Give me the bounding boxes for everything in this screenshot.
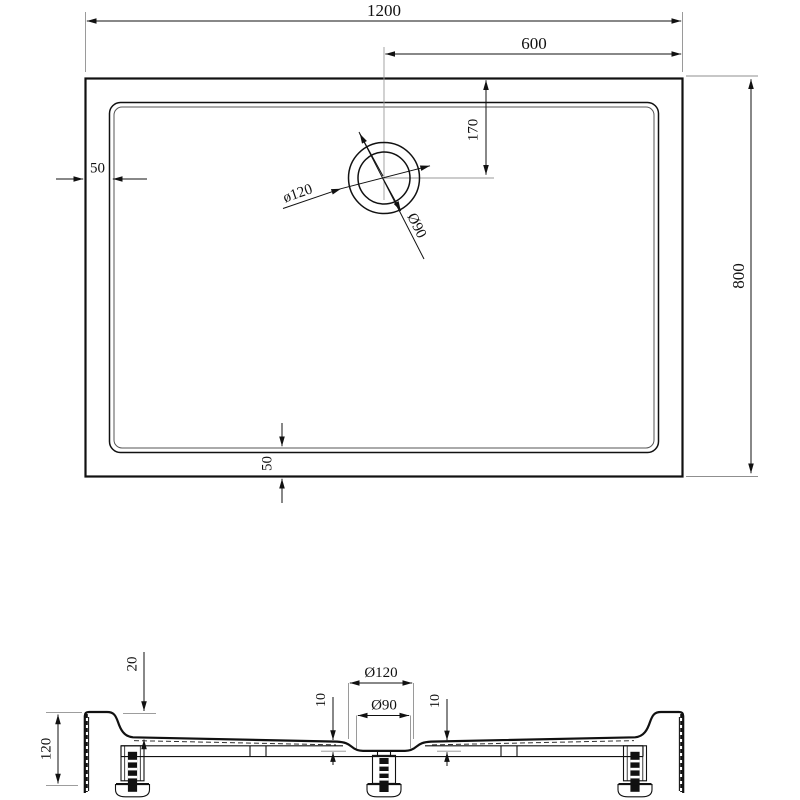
dim-label-section-drain-outer: Ø120 — [364, 665, 397, 681]
section-view: 120 20 Ø120 Ø90 10 — [39, 652, 684, 797]
dim-label-length: 1200 — [367, 1, 401, 20]
technical-drawing-canvas: 1200 600 800 170 50 50 — [0, 0, 800, 800]
thread-mark — [379, 771, 388, 774]
thread-mark — [630, 760, 639, 763]
foot-threaded-rod — [128, 752, 137, 792]
dim-label-depth-right: 10 — [428, 694, 443, 708]
thread-mark — [128, 776, 137, 779]
dim-recess-depth-left-10: 10 — [314, 693, 346, 765]
dim-margin-left-50: 50 — [56, 161, 147, 180]
dim-width-800: 800 — [686, 76, 758, 477]
foot-threaded-rod — [379, 758, 388, 792]
dim-margin-bottom-50: 50 — [260, 423, 283, 503]
foot-threaded-rod — [630, 752, 639, 792]
thread-mark — [630, 768, 639, 771]
foot-right — [618, 746, 652, 797]
dim-label-depth-left: 10 — [314, 693, 329, 707]
dim-recess-depth-right-10: 10 — [428, 694, 461, 766]
dim-rim-height-20: 20 — [123, 652, 156, 760]
top-view: 1200 600 800 170 50 50 — [56, 1, 758, 503]
dim-label-margin-left: 50 — [90, 161, 105, 177]
thread-mark — [128, 760, 137, 763]
dim-drain-inner-dia: Ø90 — [359, 132, 429, 259]
dim-label-section-drain-inner: Ø90 — [371, 698, 397, 714]
dim-label-drain-from-top: 170 — [466, 119, 482, 142]
thread-mark — [630, 776, 639, 779]
thread-mark — [379, 778, 388, 781]
dim-label-rim-height: 20 — [125, 657, 141, 672]
dim-total-height-120: 120 — [39, 712, 83, 785]
dim-label-total-height: 120 — [39, 738, 55, 761]
leader-arrow — [360, 134, 383, 176]
dim-label-drain-outer: ø120 — [281, 181, 315, 206]
dim-label-width: 800 — [729, 263, 748, 289]
thread-mark — [128, 768, 137, 771]
thread-mark — [379, 764, 388, 767]
dim-label-drain-to-right: 600 — [521, 34, 547, 53]
leader-line — [341, 166, 430, 189]
dim-section-drain-inner: Ø90 — [357, 698, 411, 749]
drawing-svg: 1200 600 800 170 50 50 — [0, 0, 800, 800]
dim-drain-from-top-170: 170 — [466, 80, 487, 174]
dim-label-margin-bottom: 50 — [260, 456, 276, 471]
dim-drain-to-right-600: 600 — [385, 34, 681, 54]
floor-thickness-hatch — [134, 741, 634, 745]
leader-arrow — [384, 180, 401, 211]
foot-center — [367, 755, 401, 796]
